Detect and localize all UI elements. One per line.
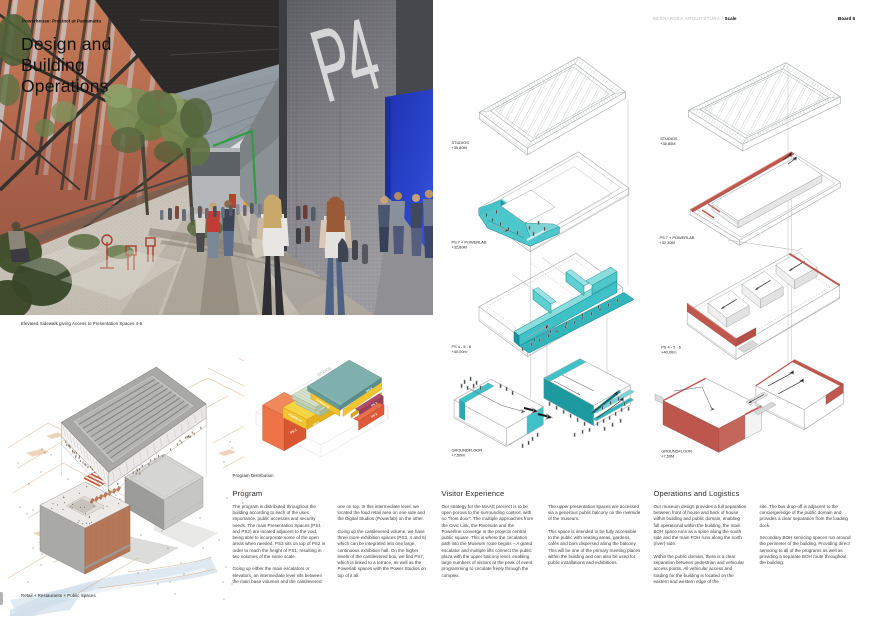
svg-text:+7,50M: +7,50M [452,452,465,457]
svg-text:+35,80M: +35,80M [660,141,675,146]
svg-text:+32,30M: +32,30M [660,240,675,245]
svg-text:Operations: Operations [21,76,109,96]
svg-text:+40,00m: +40,00m [661,349,676,354]
svg-text:+35,80M: +35,80M [452,145,467,150]
svg-text:+7,50M: +7,50M [661,453,674,458]
svg-text:Building: Building [21,55,85,75]
svg-text:Powerhouse: Precinct at Parram: Powerhouse: Precinct at Parramatta [22,19,101,24]
svg-text:+40,00m: +40,00m [452,349,467,354]
svg-text:Design and: Design and [21,34,112,54]
svg-text:+32,80M: +32,80M [452,244,467,249]
